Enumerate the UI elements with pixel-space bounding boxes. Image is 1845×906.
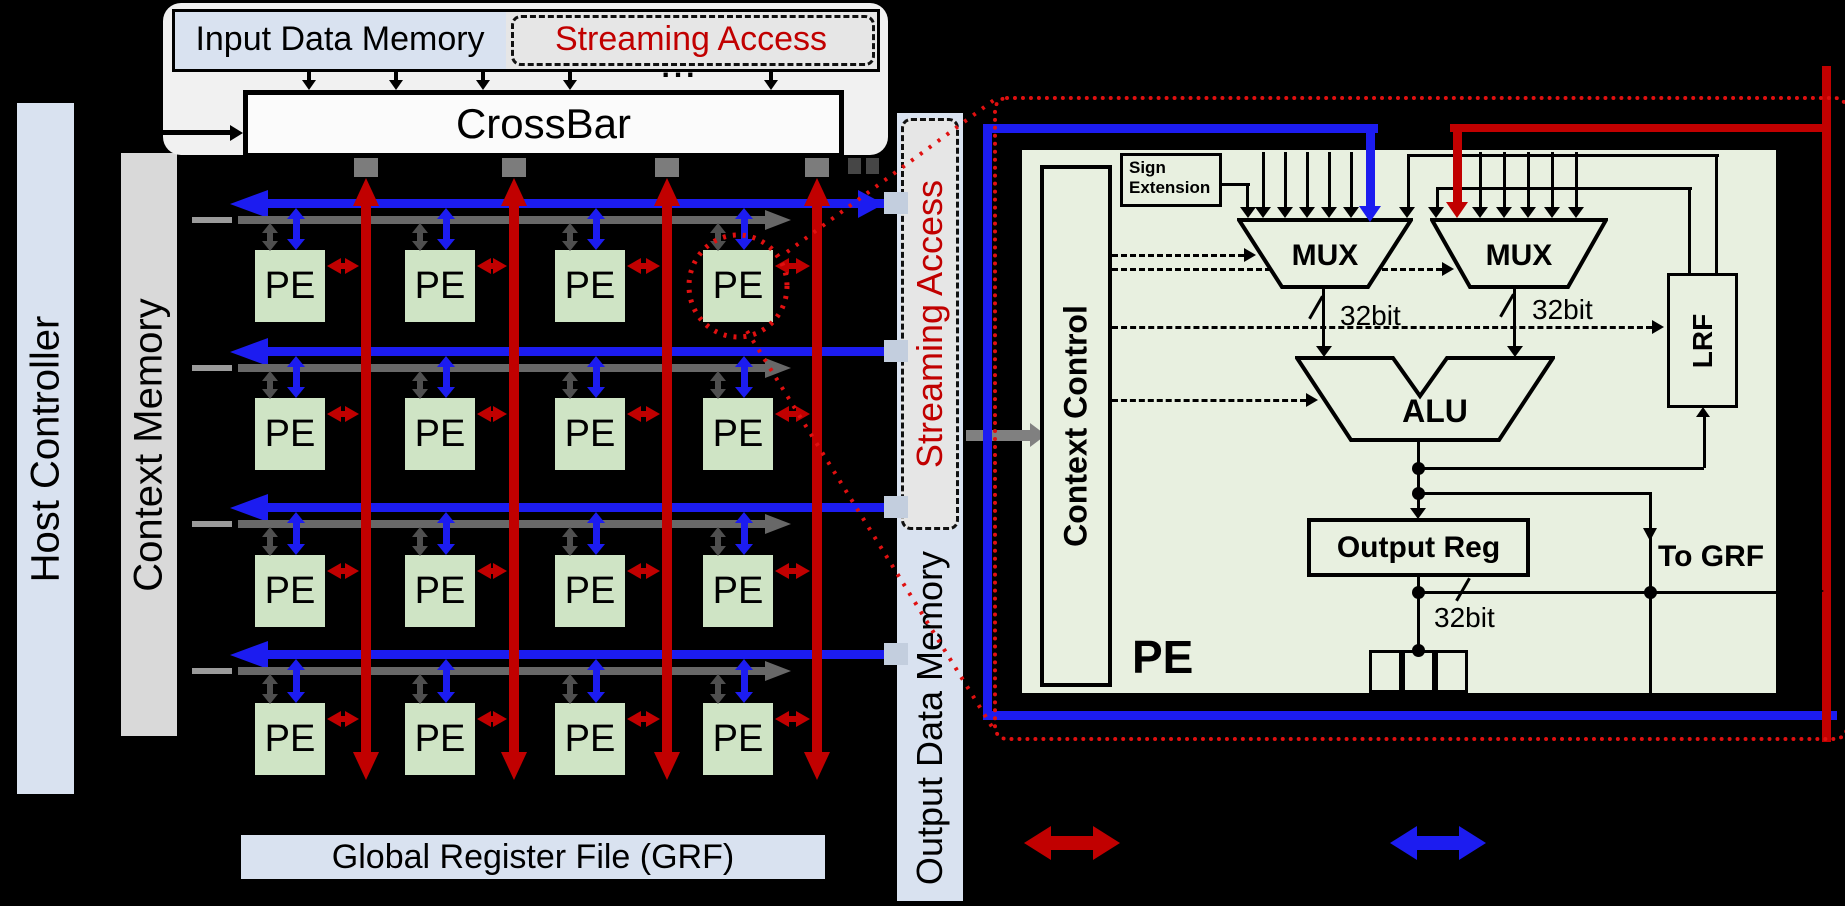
gray-link-r4c4-head-bottom <box>710 694 726 704</box>
blue-loop-left <box>983 124 992 720</box>
pe-box-r4c3: PE <box>555 703 625 775</box>
blue-bus-row2 <box>246 347 886 356</box>
blue-link-r2c1-shaft <box>293 366 300 388</box>
gray-bus-lead-row2 <box>192 365 232 371</box>
crossbar-port-stub-3 <box>655 158 679 177</box>
blue-bus-stub-row4 <box>884 643 908 665</box>
continuation-dots: ... <box>648 56 712 80</box>
host-controller-label: Host Controller <box>23 315 68 582</box>
blue-bus-row1 <box>246 199 886 208</box>
crossbar-feed-arrow-1-shaft <box>394 70 398 80</box>
red-link-r1c2-head-left <box>477 258 491 274</box>
gray-bus-row2 <box>238 364 765 372</box>
gray-link-r2c3-head-bottom <box>562 389 578 399</box>
crossbar-port-stub-extra-2 <box>866 158 879 174</box>
red-link-r2c2-shaft <box>490 411 494 417</box>
blue-bus-row3 <box>246 503 886 512</box>
gray-bus-lead-row3 <box>192 521 232 527</box>
crossbar-feed-arrow-2-head <box>476 80 490 90</box>
blue-link-r3c4-head-bottom <box>735 544 753 555</box>
blue-link-r2c2-shaft <box>443 366 450 388</box>
red-link-r3c1-head-right <box>345 563 359 579</box>
red-link-r4c1-head-left <box>327 711 341 727</box>
red-column-down-arrow-2 <box>501 752 527 780</box>
red-column-up-arrow-1 <box>353 178 379 206</box>
gray-link-r3c2-shaft <box>417 536 423 547</box>
pe-box-label: PE <box>415 265 466 308</box>
red-link-r3c3-shaft <box>640 568 647 574</box>
red-column-line-1 <box>361 204 371 754</box>
crossbar-feed-arrow-0-head <box>302 80 316 90</box>
blue-link-r3c1-shaft <box>293 522 300 545</box>
gray-bus-arrow-row1 <box>765 210 791 230</box>
blue-link-r2c3-head-bottom <box>587 387 605 398</box>
gray-link-r1c4-shaft <box>715 232 721 242</box>
pe-box-label: PE <box>265 413 316 456</box>
crossbar-feed-arrow-2-shaft <box>481 70 485 80</box>
legend-red-arrow-head-right <box>1093 826 1120 860</box>
red-link-r2c1-shaft <box>340 411 346 417</box>
input-data-memory-label: Input Data Memory <box>175 9 505 69</box>
detail-zoom-dotted-rect <box>993 96 1845 741</box>
blue-link-r4c3-head-bottom <box>587 692 605 703</box>
red-link-r3c1-shaft <box>340 568 346 574</box>
blue-bus-row4 <box>246 650 886 659</box>
blue-link-r3c2-head-bottom <box>437 544 455 555</box>
pe-box-label: PE <box>565 413 616 456</box>
crossbar-port-stub-2 <box>502 158 526 177</box>
red-column-line-4 <box>812 204 822 754</box>
gray-link-r4c3-shaft <box>567 683 573 695</box>
gray-link-r4c2-shaft <box>417 683 423 695</box>
blue-link-r3c3-head-bottom <box>587 544 605 555</box>
blue-link-r4c2-shaft <box>443 669 450 693</box>
red-link-r1c1-shaft <box>340 263 346 269</box>
red-link-r4c4-shaft <box>788 716 797 722</box>
blue-link-r1c1-head-bottom <box>287 239 305 250</box>
crossbar-box: CrossBar <box>243 90 844 158</box>
red-column-down-arrow-1 <box>353 752 379 780</box>
crossbar-feed-arrow-4-head <box>764 80 778 90</box>
gray-link-r1c4-head-bottom <box>710 241 726 251</box>
pe-box-r1c3: PE <box>555 250 625 322</box>
red-link-r4c1-shaft <box>340 716 346 722</box>
blue-link-r4c1-head-bottom <box>287 692 305 703</box>
red-link-r4c4-head-right <box>796 711 810 727</box>
gray-link-r3c1-shaft <box>267 536 273 547</box>
red-link-r2c3-shaft <box>640 411 647 417</box>
red-link-r4c3-head-right <box>646 711 660 727</box>
gray-link-r2c1-head-bottom <box>262 389 278 399</box>
legend-blue-arrow-head-left <box>1390 826 1417 860</box>
red-column-up-arrow-4 <box>804 178 830 206</box>
blue-link-r1c2-head-bottom <box>437 239 455 250</box>
context-memory-label: Context Memory <box>127 298 172 591</box>
red-link-r2c1-head-left <box>327 406 341 422</box>
red-link-r3c2-head-right <box>493 563 507 579</box>
red-link-r3c2-head-left <box>477 563 491 579</box>
red-link-r4c2-shaft <box>490 716 494 722</box>
red-link-r1c3-head-right <box>646 258 660 274</box>
crossbar-port-stub-4 <box>805 158 829 177</box>
red-link-r2c1-head-right <box>345 406 359 422</box>
red-link-r1c1-head-right <box>345 258 359 274</box>
gray-bus-arrow-row3 <box>765 514 791 534</box>
pe-box-r3c1: PE <box>255 555 325 627</box>
pe-box-label: PE <box>265 265 316 308</box>
pe-box-label: PE <box>565 570 616 613</box>
pe-box-r2c3: PE <box>555 398 625 470</box>
pe-box-label: PE <box>415 413 466 456</box>
gray-link-r1c3-head-bottom <box>562 241 578 251</box>
red-link-r2c2-head-right <box>493 406 507 422</box>
red-column-up-arrow-2 <box>501 178 527 206</box>
gray-link-r1c2-shaft <box>417 232 423 242</box>
legend-blue-arrow-head-right <box>1459 826 1486 860</box>
red-link-r4c2-head-right <box>493 711 507 727</box>
gray-link-r4c4-shaft <box>715 683 721 695</box>
cgra-architecture-diagram: Host Controller Context Memory Input Dat… <box>0 0 1845 906</box>
red-link-r1c4-shaft <box>788 263 797 269</box>
gray-link-r3c1-head-bottom <box>262 546 278 556</box>
gray-link-r1c1-head-bottom <box>262 241 278 251</box>
host-controller-box: Host Controller <box>17 103 74 794</box>
pe-box-r2c1: PE <box>255 398 325 470</box>
pe-box-label: PE <box>713 265 764 308</box>
red-column-down-arrow-4 <box>804 752 830 780</box>
pe-box-r3c4: PE <box>703 555 773 627</box>
red-link-r3c2-shaft <box>490 568 494 574</box>
blue-bus-stub-row3 <box>884 496 908 518</box>
red-link-r4c3-head-left <box>627 711 641 727</box>
red-link-r1c4-head-right <box>796 258 810 274</box>
pe-box-r4c4: PE <box>703 703 773 775</box>
pe-box-label: PE <box>713 718 764 761</box>
pe-box-label: PE <box>415 718 466 761</box>
red-link-r3c3-head-left <box>627 563 641 579</box>
crossbar-feed-arrow-3-head <box>563 80 577 90</box>
blue-link-r3c2-shaft <box>443 522 450 545</box>
red-link-r1c1-head-left <box>327 258 341 274</box>
gray-bus-arrow-row2 <box>765 358 791 378</box>
red-link-r3c4-head-right <box>796 563 810 579</box>
blue-link-r1c1-shaft <box>293 218 300 240</box>
output-data-memory-label: Output Data Memory <box>909 551 951 885</box>
crossbar-feed-arrow-1-head <box>389 80 403 90</box>
pe-box-r1c1: PE <box>255 250 325 322</box>
pe-box-label: PE <box>565 265 616 308</box>
pe-box-r4c1: PE <box>255 703 325 775</box>
red-link-r3c1-head-left <box>327 563 341 579</box>
gray-link-r2c3-shaft <box>567 380 573 390</box>
gray-link-r2c1-shaft <box>267 380 273 390</box>
red-link-r3c3-head-right <box>646 563 660 579</box>
grf-box: Global Register File (GRF) <box>238 832 828 882</box>
red-column-down-arrow-3 <box>654 752 680 780</box>
blue-link-r2c4-head-bottom <box>735 387 753 398</box>
gray-link-r3c3-shaft <box>567 536 573 547</box>
gray-link-r4c1-head-bottom <box>262 694 278 704</box>
crossbar-feed-arrow-0-shaft <box>307 70 311 80</box>
crossbar-input-arrow-shaft <box>163 130 230 135</box>
red-link-r2c3-head-left <box>627 406 641 422</box>
blue-link-r1c3-head-bottom <box>587 239 605 250</box>
pe-box-label: PE <box>565 718 616 761</box>
crossbar-port-stub-extra-1 <box>848 158 861 174</box>
blue-link-r3c3-shaft <box>593 522 600 545</box>
legend-red-arrow-shaft <box>1050 836 1094 850</box>
blue-link-r4c4-head-bottom <box>735 692 753 703</box>
blue-link-r2c4-shaft <box>741 366 748 388</box>
blue-link-r1c4-shaft <box>741 218 748 240</box>
red-link-r2c4-shaft <box>788 411 797 417</box>
blue-link-r2c3-shaft <box>593 366 600 388</box>
gray-bus-lead-row4 <box>192 668 232 674</box>
output-data-memory-label-area: Output Data Memory <box>897 535 963 901</box>
blue-link-r4c1-shaft <box>293 669 300 693</box>
gray-link-r2c4-shaft <box>715 380 721 390</box>
red-link-r1c4-head-left <box>775 258 789 274</box>
red-link-r1c2-shaft <box>490 263 494 269</box>
pe-box-r3c3: PE <box>555 555 625 627</box>
red-link-r4c4-head-left <box>775 711 789 727</box>
red-link-r2c2-head-left <box>477 406 491 422</box>
blue-link-r4c3-shaft <box>593 669 600 693</box>
gray-bus-row3 <box>238 520 765 528</box>
pe-box-r4c2: PE <box>405 703 475 775</box>
red-link-r1c3-head-left <box>627 258 641 274</box>
blue-link-r1c4-head-bottom <box>735 239 753 250</box>
blue-link-r1c2-shaft <box>443 218 450 240</box>
gray-bus-arrow-row4 <box>765 661 791 681</box>
red-link-r3c4-shaft <box>788 568 797 574</box>
blue-link-r3c1-head-bottom <box>287 544 305 555</box>
output-streaming-access-box: Streaming Access <box>901 118 959 530</box>
red-column-up-arrow-3 <box>654 178 680 206</box>
gray-link-r3c2-head-bottom <box>412 546 428 556</box>
gray-link-r1c1-shaft <box>267 232 273 242</box>
blue-link-r2c1-head-bottom <box>287 387 305 398</box>
pe-box-label: PE <box>415 570 466 613</box>
crossbar-feed-arrow-3-shaft <box>568 70 572 80</box>
gray-link-r4c3-head-bottom <box>562 694 578 704</box>
gray-link-r2c2-shaft <box>417 380 423 390</box>
gray-bus-row1 <box>238 216 765 224</box>
pe-box-r2c2: PE <box>405 398 475 470</box>
pe-box-r2c4: PE <box>703 398 773 470</box>
blue-bus-stub-row1 <box>884 192 908 214</box>
crossbar-feed-arrow-4-shaft <box>769 70 773 80</box>
gray-link-r3c3-head-bottom <box>562 546 578 556</box>
red-link-r2c4-head-left <box>775 406 789 422</box>
gray-link-r2c4-head-bottom <box>710 389 726 399</box>
crossbar-port-stub-1 <box>354 158 378 177</box>
pe-box-r3c2: PE <box>405 555 475 627</box>
pe-box-r1c4: PE <box>703 250 773 322</box>
red-link-r1c3-shaft <box>640 263 647 269</box>
gray-link-r1c2-head-bottom <box>412 241 428 251</box>
blue-link-r2c2-head-bottom <box>437 387 455 398</box>
red-link-r3c4-head-left <box>775 563 789 579</box>
red-link-r4c2-head-left <box>477 711 491 727</box>
gray-link-r4c1-shaft <box>267 683 273 695</box>
gray-link-r2c2-head-bottom <box>412 389 428 399</box>
gray-link-r3c4-shaft <box>715 536 721 547</box>
red-link-r1c2-head-right <box>493 258 507 274</box>
gray-link-r3c4-head-bottom <box>710 546 726 556</box>
pe-box-r1c2: PE <box>405 250 475 322</box>
blue-link-r3c4-shaft <box>741 522 748 545</box>
red-column-line-3 <box>662 204 672 754</box>
legend-blue-arrow-shaft <box>1416 836 1460 850</box>
red-link-r2c3-head-right <box>646 406 660 422</box>
pe-box-label: PE <box>713 413 764 456</box>
red-column-line-2 <box>509 204 519 754</box>
pe-box-label: PE <box>713 570 764 613</box>
blue-link-r1c3-shaft <box>593 218 600 240</box>
blue-bus-right-arrow-row1 <box>858 190 884 218</box>
gray-bus-row4 <box>238 667 765 675</box>
output-streaming-access-label: Streaming Access <box>909 180 951 468</box>
red-link-r2c4-head-right <box>796 406 810 422</box>
gray-link-r1c3-shaft <box>567 232 573 242</box>
gray-bus-lead-row1 <box>192 217 232 223</box>
blue-bus-stub-row2 <box>884 340 908 362</box>
red-link-r4c3-shaft <box>640 716 647 722</box>
blue-link-r4c2-head-bottom <box>437 692 455 703</box>
crossbar-input-arrow-head <box>230 125 243 141</box>
pe-box-label: PE <box>265 718 316 761</box>
pe-box-label: PE <box>265 570 316 613</box>
legend-red-arrow-head-left <box>1024 826 1051 860</box>
red-link-r4c1-head-right <box>345 711 359 727</box>
blue-link-r4c4-shaft <box>741 669 748 693</box>
context-memory-box: Context Memory <box>121 153 177 736</box>
gray-link-r4c2-head-bottom <box>412 694 428 704</box>
